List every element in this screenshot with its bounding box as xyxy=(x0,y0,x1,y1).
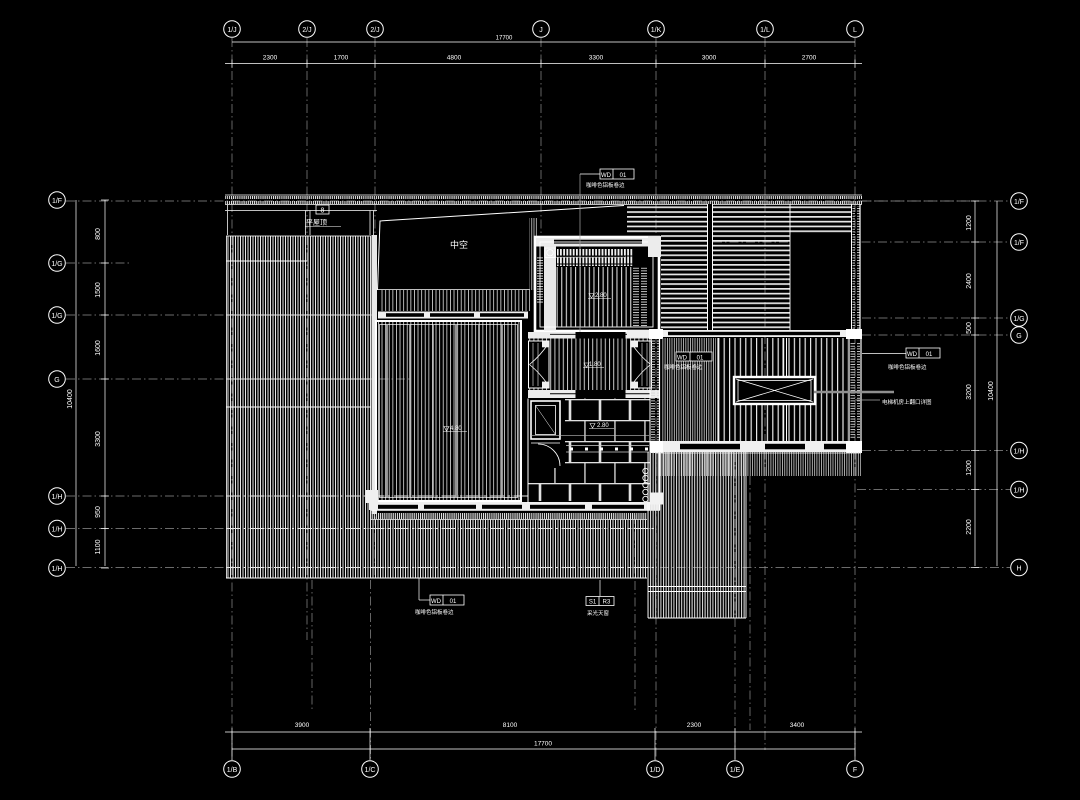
svg-text:10400: 10400 xyxy=(988,381,995,401)
svg-text:WD: WD xyxy=(601,173,612,179)
svg-text:1/D: 1/D xyxy=(650,767,661,774)
svg-text:1/L: 1/L xyxy=(760,27,770,34)
svg-text:500: 500 xyxy=(966,322,973,334)
svg-text:17700: 17700 xyxy=(534,741,552,748)
svg-text:1/B: 1/B xyxy=(227,767,238,774)
svg-text:1/H: 1/H xyxy=(1014,449,1025,456)
svg-text:采光天窗: 采光天窗 xyxy=(587,609,610,617)
svg-text:咖啡色铝板卷边: 咖啡色铝板卷边 xyxy=(586,181,625,189)
svg-text:10400: 10400 xyxy=(67,389,74,409)
svg-text:G: G xyxy=(54,377,59,384)
svg-text:R3: R3 xyxy=(603,600,611,606)
svg-text:1/J: 1/J xyxy=(227,27,236,34)
svg-text:1/E: 1/E xyxy=(730,767,741,774)
svg-text:3400: 3400 xyxy=(790,722,805,729)
svg-text:咖啡色铝板卷边: 咖啡色铝板卷边 xyxy=(664,363,703,371)
svg-text:01: 01 xyxy=(697,356,704,362)
svg-text:H: H xyxy=(1016,566,1021,573)
svg-text:1/H: 1/H xyxy=(1014,488,1025,495)
svg-text:咖啡色铝板卷边: 咖啡色铝板卷边 xyxy=(888,363,927,371)
svg-text:1/F: 1/F xyxy=(1014,199,1024,206)
svg-text:电梯机房上翻口详图: 电梯机房上翻口详图 xyxy=(882,398,932,406)
svg-text:S1: S1 xyxy=(589,600,597,606)
svg-text:01: 01 xyxy=(620,173,627,179)
svg-text:G: G xyxy=(1016,333,1021,340)
svg-text:1100: 1100 xyxy=(95,539,102,554)
svg-text:1/G: 1/G xyxy=(1013,316,1024,323)
svg-text:1500: 1500 xyxy=(95,282,102,298)
svg-text:17700: 17700 xyxy=(496,36,513,42)
svg-text:3900: 3900 xyxy=(295,722,310,729)
svg-text:1/K: 1/K xyxy=(651,27,662,34)
svg-text:WD: WD xyxy=(677,356,688,362)
svg-text:1700: 1700 xyxy=(334,55,349,62)
svg-text:1/H: 1/H xyxy=(52,494,63,501)
svg-text:2.80: 2.80 xyxy=(595,293,607,299)
svg-text:平屋顶: 平屋顶 xyxy=(306,219,327,227)
svg-text:1/G: 1/G xyxy=(51,313,62,320)
svg-text:1/C: 1/C xyxy=(365,767,376,774)
svg-text:3200: 3200 xyxy=(966,384,973,400)
svg-text:2/J: 2/J xyxy=(302,27,311,34)
svg-text:L: L xyxy=(853,27,857,34)
svg-text:1/H: 1/H xyxy=(52,527,63,534)
svg-text:8100: 8100 xyxy=(503,722,518,729)
svg-text:1/F: 1/F xyxy=(52,198,62,205)
svg-text:1/H: 1/H xyxy=(52,566,63,573)
svg-text:4800: 4800 xyxy=(447,55,462,62)
svg-text:950: 950 xyxy=(95,506,102,518)
svg-text:咖啡色铝板卷边: 咖啡色铝板卷边 xyxy=(415,608,454,616)
svg-text:WD: WD xyxy=(431,599,442,605)
svg-text:1/G: 1/G xyxy=(51,261,62,268)
svg-text:J: J xyxy=(539,27,543,34)
svg-text:1.80: 1.80 xyxy=(589,362,601,368)
svg-text:3300: 3300 xyxy=(589,55,604,62)
svg-text:2400: 2400 xyxy=(966,273,973,289)
svg-text:8: 8 xyxy=(321,208,325,215)
svg-text:1/F: 1/F xyxy=(1014,240,1024,247)
svg-text:F: F xyxy=(853,767,857,774)
svg-text:01: 01 xyxy=(450,599,457,605)
svg-text:3300: 3300 xyxy=(95,431,102,447)
svg-text:1200: 1200 xyxy=(966,215,973,231)
svg-text:1600: 1600 xyxy=(95,340,102,356)
svg-text:4.80: 4.80 xyxy=(450,426,462,432)
svg-text:WD: WD xyxy=(907,352,918,358)
svg-text:2200: 2200 xyxy=(966,519,973,535)
svg-text:2300: 2300 xyxy=(687,722,702,729)
svg-text:中空: 中空 xyxy=(450,239,468,250)
svg-text:3000: 3000 xyxy=(702,55,717,62)
svg-text:2.80: 2.80 xyxy=(597,423,609,429)
svg-text:1200: 1200 xyxy=(966,460,973,476)
svg-text:2/J: 2/J xyxy=(370,27,379,34)
svg-text:2300: 2300 xyxy=(263,55,278,62)
svg-text:2700: 2700 xyxy=(802,55,817,62)
svg-text:800: 800 xyxy=(95,228,102,240)
svg-text:01: 01 xyxy=(926,352,933,358)
